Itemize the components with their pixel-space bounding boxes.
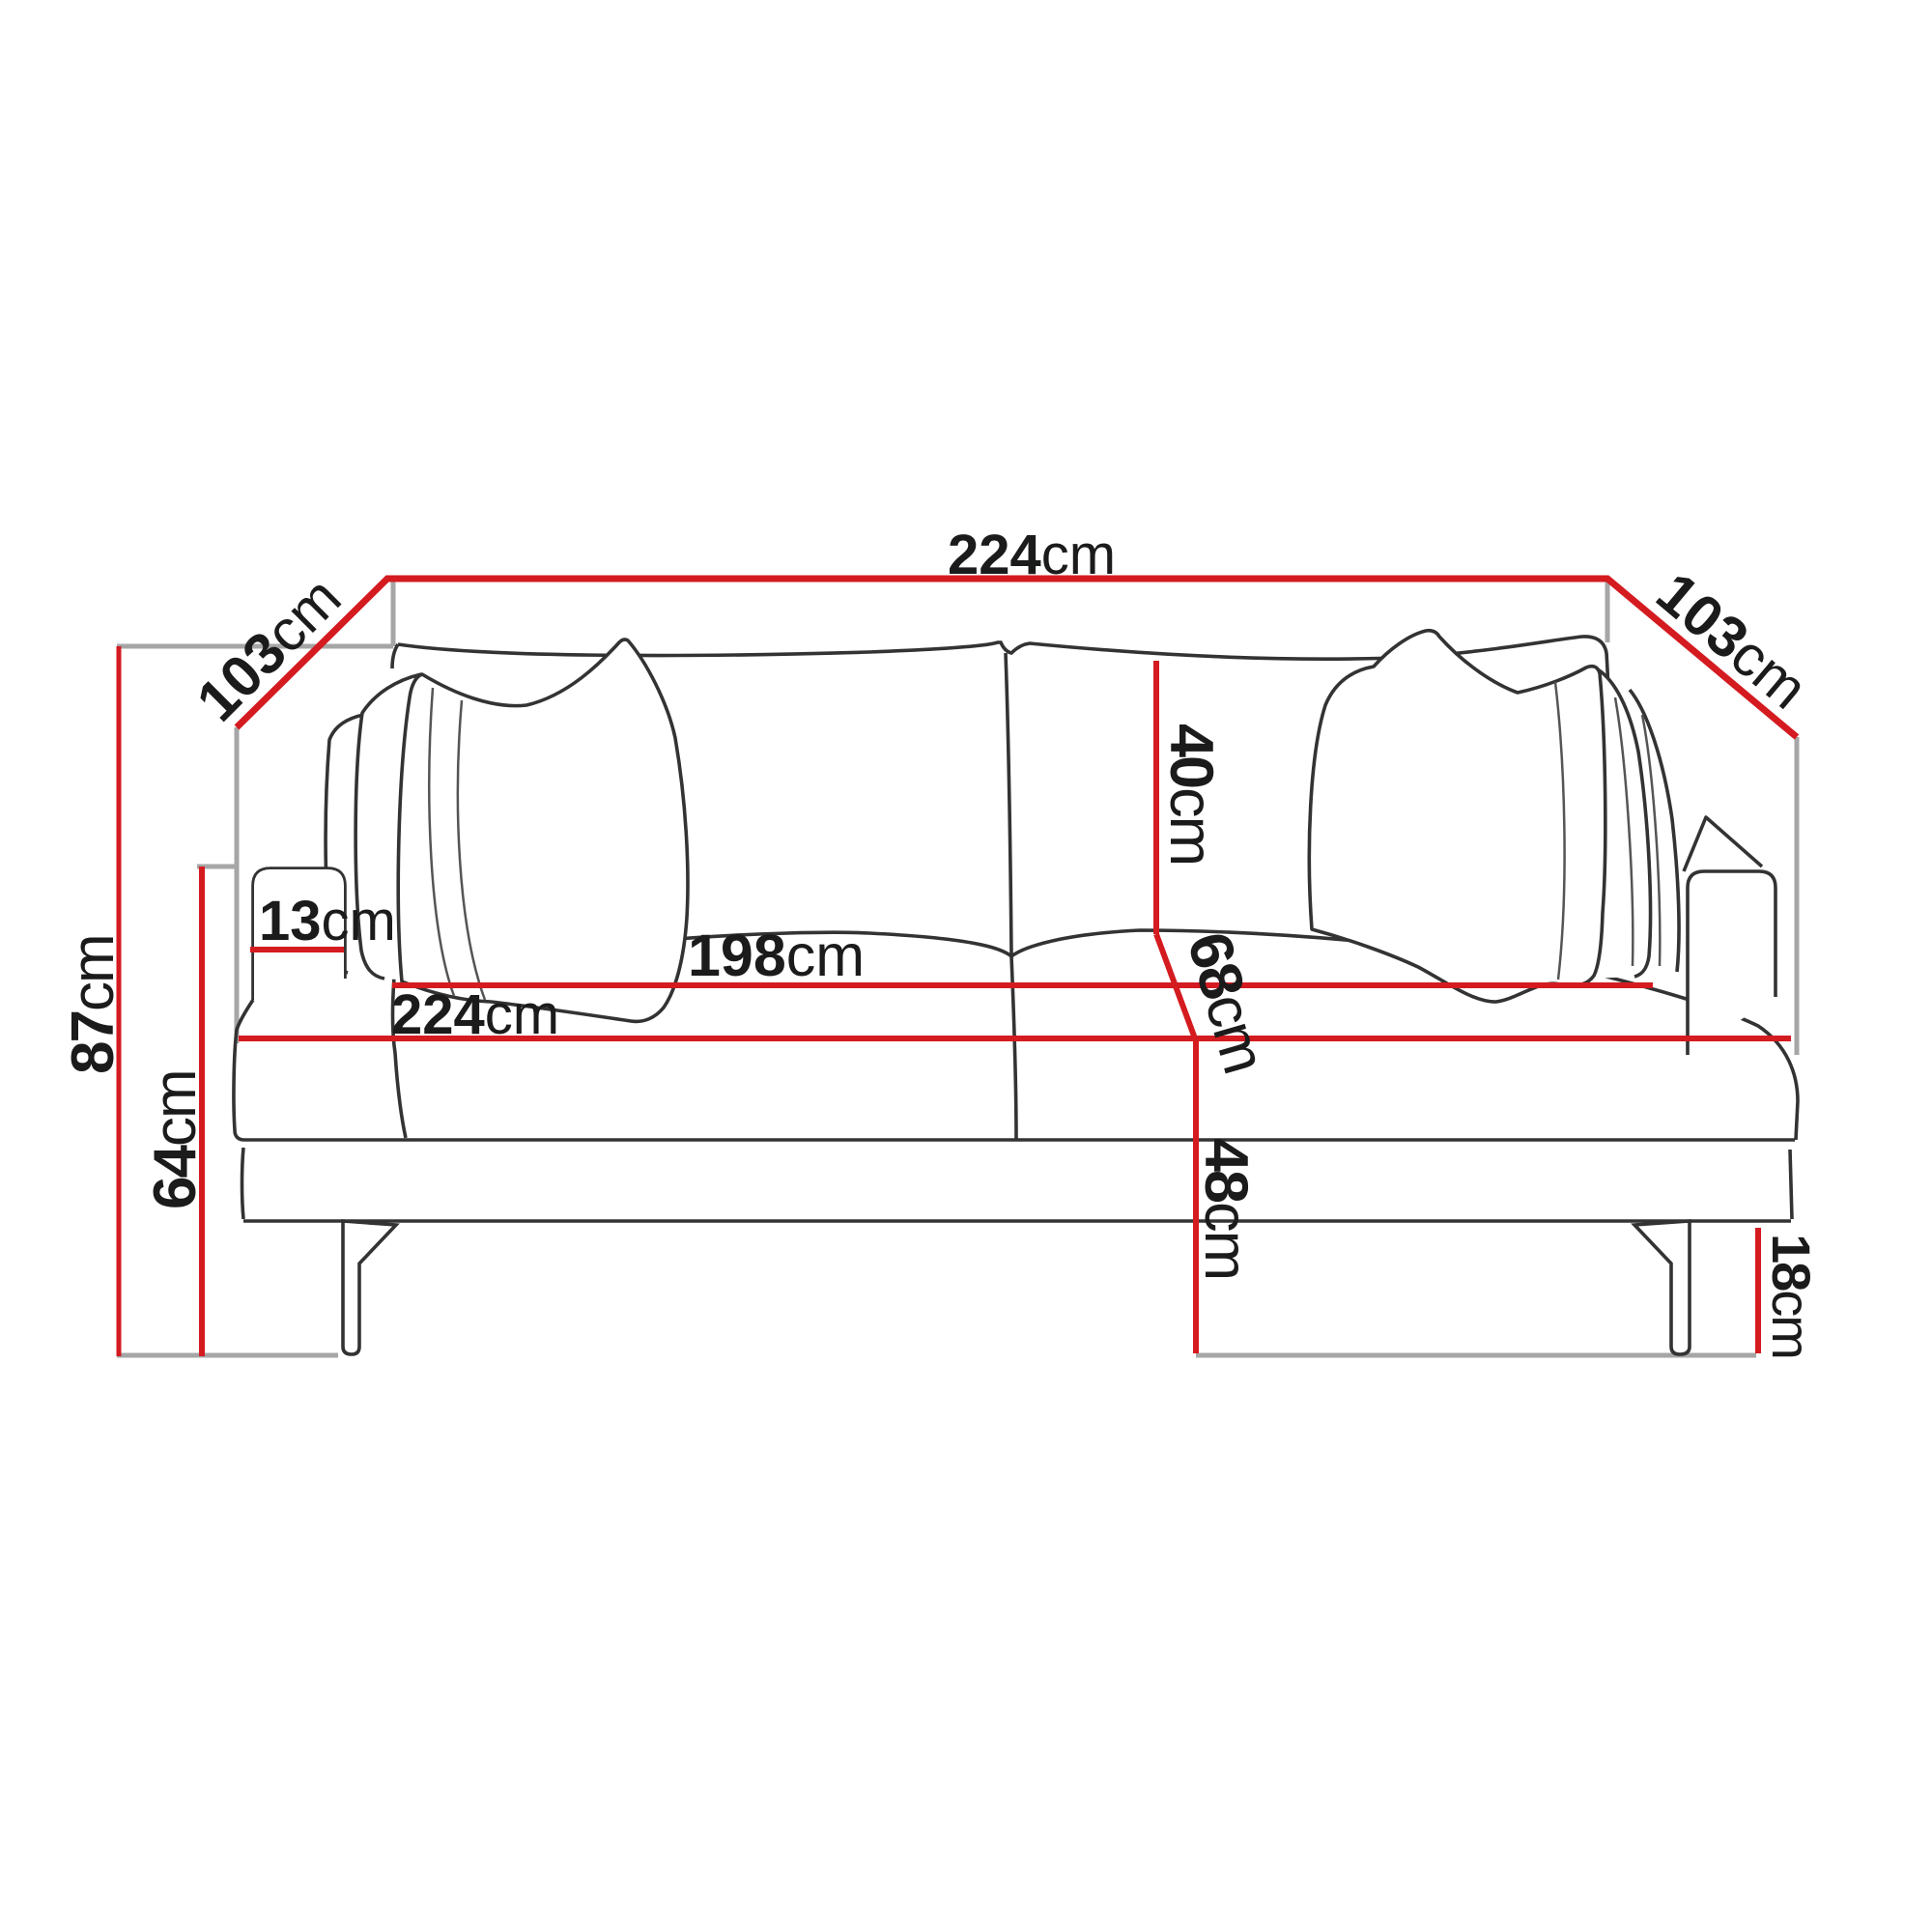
svg-text:40cm: 40cm xyxy=(1157,724,1225,865)
svg-text:224cm: 224cm xyxy=(391,983,559,1046)
svg-text:87cm: 87cm xyxy=(60,935,127,1074)
svg-text:48cm: 48cm xyxy=(1192,1138,1260,1279)
svg-text:64cm: 64cm xyxy=(142,1070,209,1209)
svg-text:198cm: 198cm xyxy=(688,923,865,988)
svg-text:13cm: 13cm xyxy=(259,890,396,952)
svg-text:18cm: 18cm xyxy=(1761,1234,1822,1358)
svg-text:224cm: 224cm xyxy=(948,524,1116,586)
